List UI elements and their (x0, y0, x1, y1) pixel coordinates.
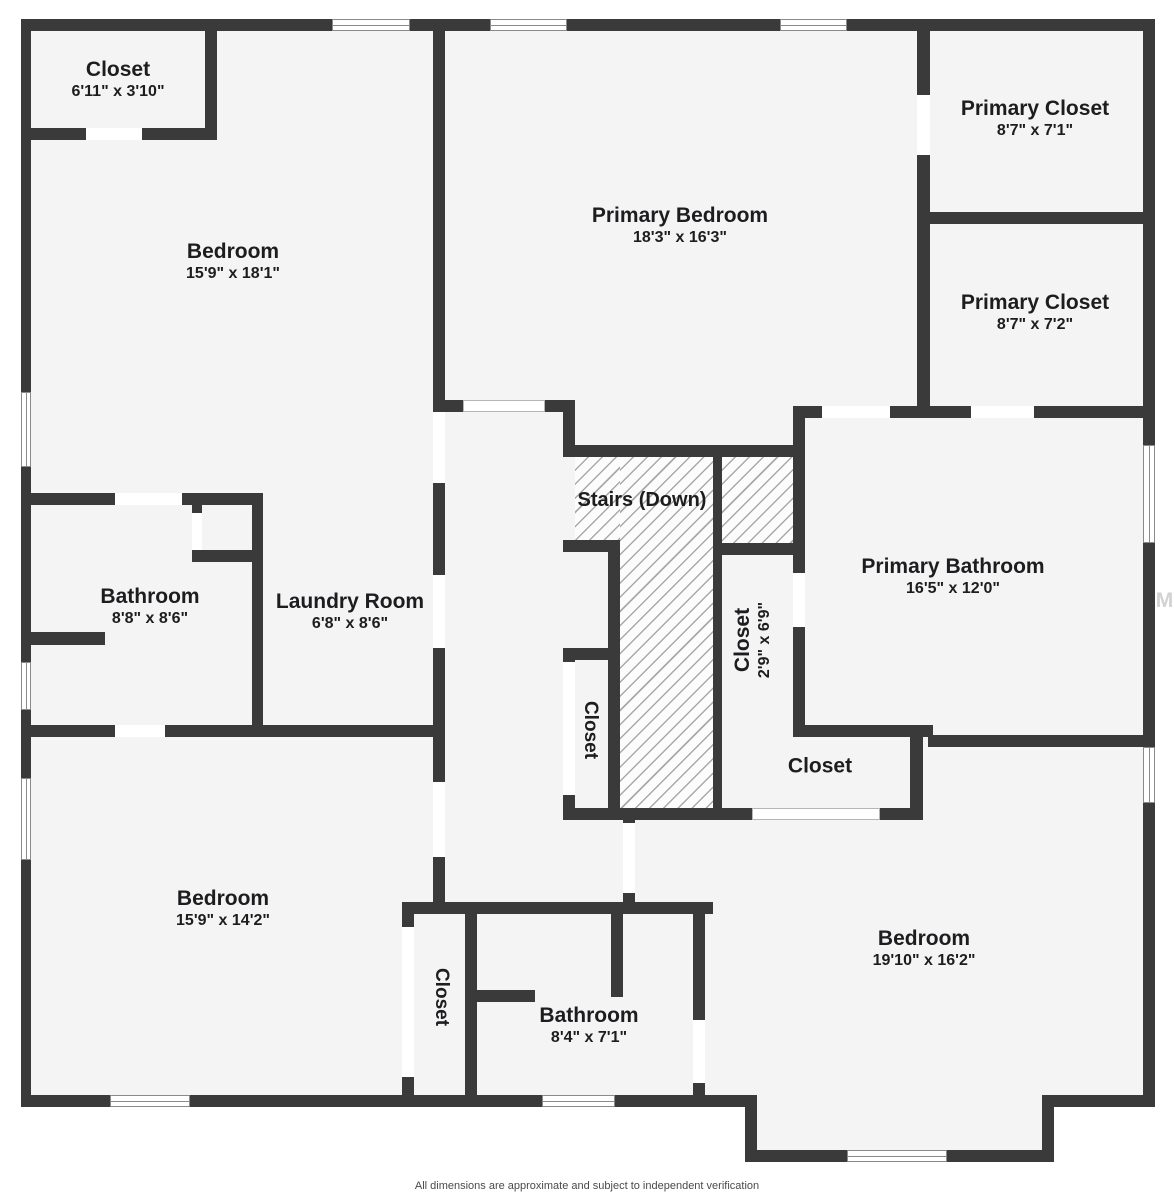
wall (21, 19, 31, 1107)
window-pane-line (26, 663, 27, 709)
room-label-laundry-room: Laundry Room6'8" x 8'6" (276, 590, 424, 634)
window-pane-line (848, 1156, 946, 1157)
door-opening (693, 1020, 705, 1083)
wall (713, 445, 722, 820)
window (1143, 747, 1155, 803)
door-opening (563, 662, 575, 795)
door-opening (822, 406, 890, 418)
room-dimensions: 8'4" x 7'1" (539, 1029, 638, 1048)
room-name: Bathroom (100, 585, 199, 608)
room-label-closet: Closet (430, 968, 452, 1026)
window-pane-line (1149, 446, 1150, 542)
room-label-bedroom: Bedroom19'10" x 16'2" (873, 927, 976, 971)
wall (608, 540, 620, 820)
window (332, 19, 410, 31)
room-label-closet: Closet6'11" x 3'10" (71, 58, 164, 102)
room-label-closet: Closet (788, 755, 852, 780)
wall (205, 19, 217, 140)
room-label-closet: Closet (579, 701, 601, 759)
window (780, 19, 847, 31)
window-pane-line (333, 25, 409, 26)
wall (21, 725, 445, 737)
window (490, 19, 567, 31)
door-opening (402, 927, 414, 1077)
wall (611, 914, 623, 997)
room-name: Primary Bedroom (592, 204, 768, 227)
door-opening (752, 808, 880, 820)
room-label-bedroom: Bedroom15'9" x 18'1" (186, 240, 280, 284)
window (542, 1095, 615, 1107)
wall (793, 725, 933, 737)
room-dimensions: 6'11" x 3'10" (71, 83, 164, 102)
door-opening (793, 573, 805, 627)
room-name: Primary Bathroom (861, 555, 1044, 578)
wall (910, 737, 923, 820)
room-name: Closet (788, 755, 852, 778)
wall (477, 990, 535, 1002)
wall (1042, 1095, 1155, 1107)
room-label-bedroom: Bedroom15'9" x 14'2" (176, 887, 270, 931)
room-dimensions: 16'5" x 12'0" (861, 580, 1044, 599)
room-label-primary-bathroom: Primary Bathroom16'5" x 12'0" (861, 555, 1044, 599)
room-name: Closet (431, 968, 452, 1026)
room-name: Closet (731, 608, 754, 672)
room-name: Stairs (Down) (578, 489, 707, 511)
wall (21, 19, 1155, 31)
room-name: Bedroom (177, 887, 269, 910)
window-pane-line (26, 779, 27, 859)
door-opening (971, 406, 1034, 418)
wall (21, 632, 105, 645)
door-opening (623, 823, 635, 893)
door-opening (433, 412, 445, 483)
door-opening (86, 128, 142, 140)
window-pane-line (781, 25, 846, 26)
window-pane-line (491, 25, 566, 26)
room-label-bathroom: Bathroom8'8" x 8'6" (100, 585, 199, 629)
window (110, 1095, 190, 1107)
room-dimensions: 6'8" x 8'6" (276, 615, 424, 634)
wall (793, 406, 805, 737)
room-name: Bedroom (187, 240, 279, 263)
room-dimensions: 15'9" x 14'2" (176, 912, 270, 931)
room-name: Bathroom (539, 1004, 638, 1027)
room-dimensions: 8'8" x 8'6" (100, 610, 199, 629)
floor-plan: All dimensions are approximate and subje… (0, 0, 1174, 1200)
wall (928, 735, 1143, 747)
room-name: Bedroom (878, 927, 970, 950)
window (21, 662, 31, 710)
wall (1143, 19, 1155, 1107)
stairs-hatch-area (722, 457, 793, 543)
wall (713, 543, 805, 555)
room-dimensions: 15'9" x 18'1" (186, 265, 280, 284)
window-pane-line (543, 1101, 614, 1102)
room-name: Closet (86, 58, 150, 81)
door-opening (433, 575, 445, 648)
room-name: Laundry Room (276, 590, 424, 613)
room-name: Primary Closet (961, 291, 1109, 314)
room-label-primary-bedroom: Primary Bedroom18'3" x 16'3" (592, 204, 768, 248)
room-dimensions: 19'10" x 16'2" (873, 952, 976, 971)
room-dimensions: 8'7" x 7'1" (961, 122, 1109, 141)
window (21, 392, 31, 467)
door-opening (433, 782, 445, 857)
door-opening (115, 725, 165, 737)
door-opening (115, 493, 182, 505)
door-opening (463, 400, 545, 412)
window (1143, 445, 1155, 543)
disclaimer-text: All dimensions are approximate and subje… (0, 1180, 1174, 1192)
door-opening (192, 513, 202, 550)
room-label-primary-closet: Primary Closet8'7" x 7'2" (961, 291, 1109, 335)
room-dimensions: 8'7" x 7'2" (961, 316, 1109, 335)
room-label-bathroom: Bathroom8'4" x 7'1" (539, 1004, 638, 1048)
window (21, 778, 31, 860)
window-pane-line (111, 1101, 189, 1102)
wall (465, 914, 477, 1095)
room-name: Primary Closet (961, 97, 1109, 120)
window-pane-line (26, 393, 27, 466)
stairs-label: Stairs (Down) (578, 489, 707, 513)
window-pane-line (1149, 748, 1150, 802)
window (847, 1150, 947, 1162)
wall (252, 493, 263, 737)
wall (563, 445, 805, 457)
room-label-primary-closet: Primary Closet8'7" x 7'1" (961, 97, 1109, 141)
room-dimensions: 2'9" x 6'9" (756, 602, 775, 678)
room-name: Closet (580, 701, 601, 759)
door-opening (917, 95, 930, 155)
room-label-closet: Closet2'9" x 6'9" (731, 602, 775, 678)
wall (917, 212, 1143, 224)
room-dimensions: 18'3" x 16'3" (592, 229, 768, 248)
wall (402, 902, 713, 914)
